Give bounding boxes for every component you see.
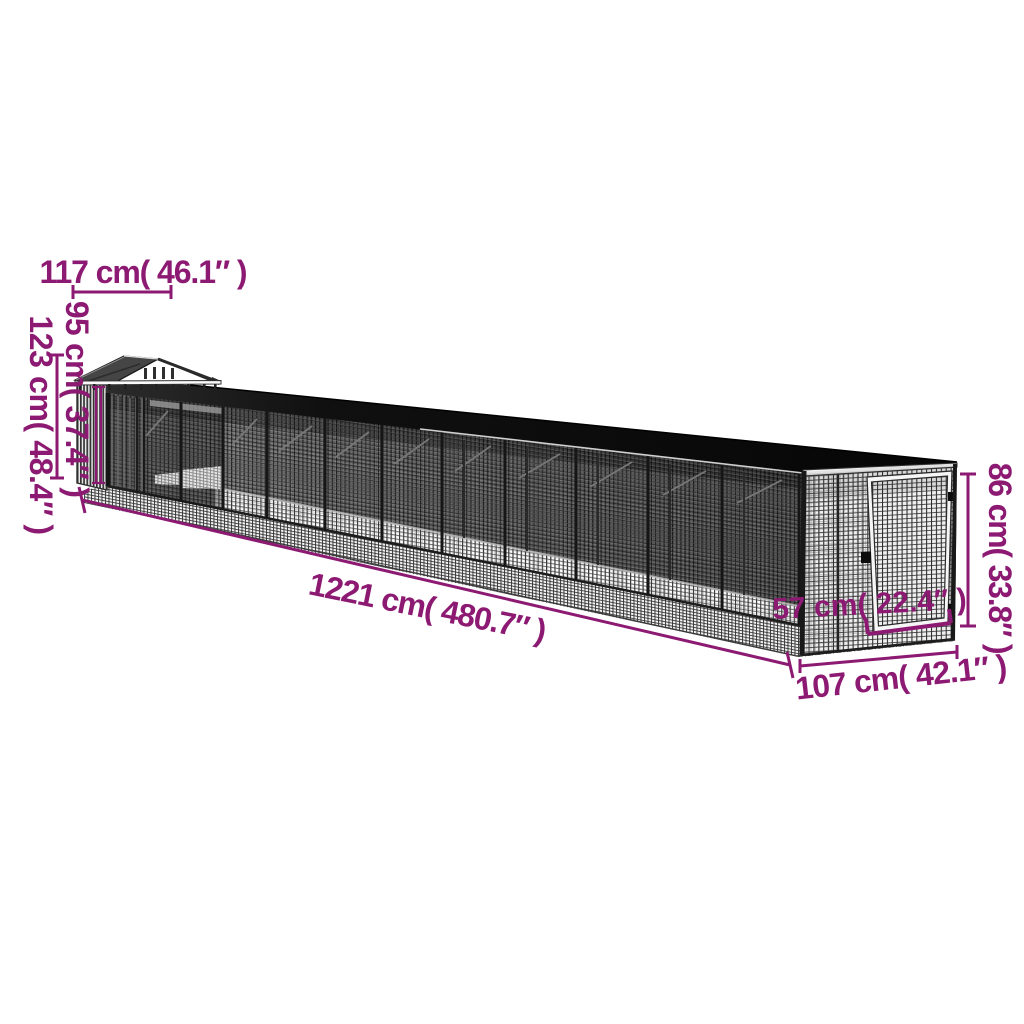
svg-text:123 cm( 48.4″ ): 123 cm( 48.4″ ) xyxy=(23,315,59,534)
svg-text:117 cm( 46.1″ ): 117 cm( 46.1″ ) xyxy=(40,254,247,290)
svg-text:86 cm( 33.8″ ): 86 cm( 33.8″ ) xyxy=(982,463,1018,654)
svg-text:95 cm( 37.4″ ): 95 cm( 37.4″ ) xyxy=(59,301,95,497)
